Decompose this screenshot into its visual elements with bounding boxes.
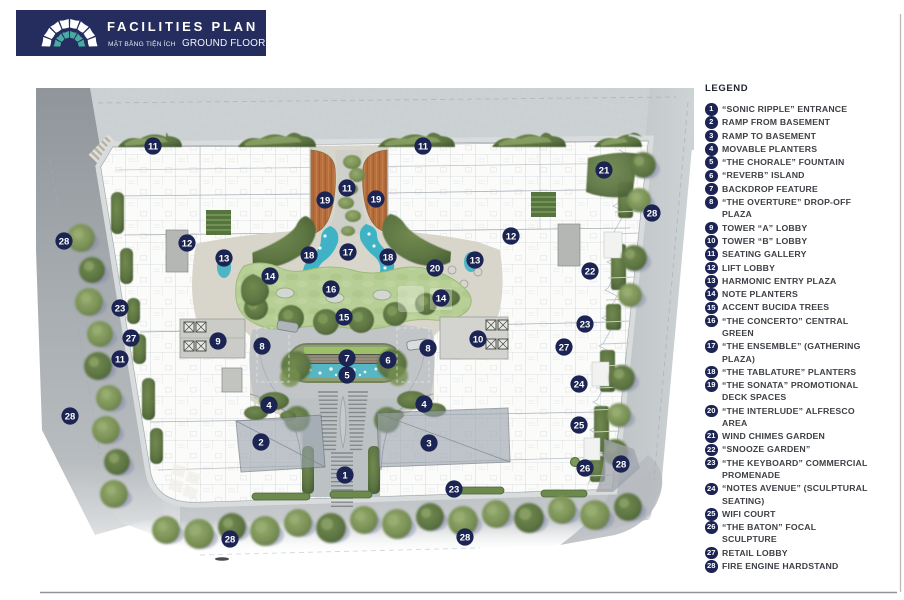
svg-text:28: 28	[225, 534, 236, 545]
svg-text:7: 7	[344, 353, 349, 364]
svg-text:12: 12	[506, 231, 517, 242]
svg-text:18: 18	[383, 252, 394, 263]
svg-text:27: 27	[559, 342, 570, 353]
svg-text:11: 11	[115, 354, 126, 365]
svg-text:14: 14	[436, 293, 447, 304]
svg-text:4: 4	[421, 399, 427, 410]
svg-text:20: 20	[430, 263, 441, 274]
svg-text:14: 14	[265, 271, 276, 282]
svg-text:27: 27	[126, 333, 137, 344]
svg-text:16: 16	[326, 284, 337, 295]
svg-text:9: 9	[215, 336, 220, 347]
svg-text:19: 19	[320, 195, 331, 206]
svg-text:23: 23	[449, 484, 460, 495]
svg-text:4: 4	[266, 400, 272, 411]
svg-text:15: 15	[339, 312, 350, 323]
svg-text:10: 10	[473, 334, 484, 345]
svg-text:24: 24	[574, 379, 585, 390]
svg-text:8: 8	[425, 343, 430, 354]
svg-text:25: 25	[574, 420, 585, 431]
svg-text:28: 28	[616, 459, 627, 470]
svg-text:26: 26	[580, 463, 591, 474]
svg-text:8: 8	[259, 341, 264, 352]
svg-text:2: 2	[258, 437, 263, 448]
svg-text:11: 11	[342, 183, 353, 194]
svg-text:28: 28	[647, 208, 658, 219]
svg-text:1: 1	[342, 470, 348, 481]
svg-text:23: 23	[115, 303, 126, 314]
svg-text:6: 6	[385, 355, 390, 366]
svg-text:28: 28	[65, 411, 76, 422]
svg-text:28: 28	[460, 532, 471, 543]
svg-text:28: 28	[59, 236, 70, 247]
svg-text:13: 13	[470, 255, 481, 266]
svg-text:22: 22	[585, 266, 596, 277]
svg-text:18: 18	[304, 250, 315, 261]
svg-text:23: 23	[580, 319, 591, 330]
svg-text:13: 13	[219, 253, 230, 264]
svg-text:11: 11	[148, 141, 159, 152]
svg-text:19: 19	[371, 194, 382, 205]
svg-text:5: 5	[344, 370, 350, 381]
svg-text:17: 17	[343, 247, 354, 258]
svg-text:3: 3	[426, 438, 431, 449]
svg-text:21: 21	[599, 165, 610, 176]
svg-text:12: 12	[182, 238, 193, 249]
svg-text:11: 11	[418, 141, 429, 152]
